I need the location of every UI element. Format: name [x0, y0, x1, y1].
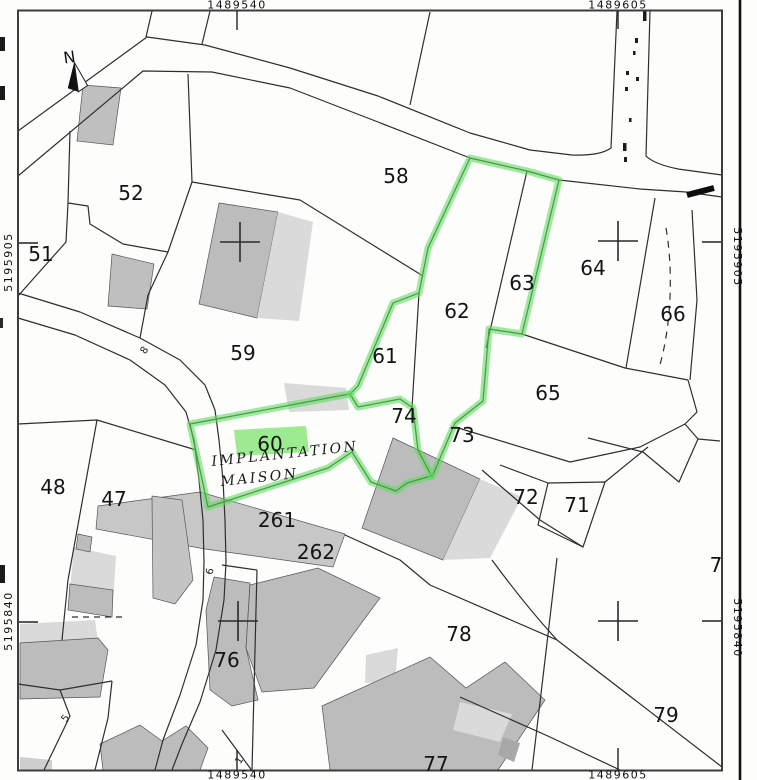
parcel-label-79: 79: [653, 703, 678, 727]
annotation-line2: MAISON: [219, 466, 300, 490]
road-centerline-dots: [623, 10, 647, 162]
parcel-label-61: 61: [372, 344, 397, 368]
road-edge-lower: [18, 71, 722, 197]
parcel-label-65: 65: [535, 381, 560, 405]
parcel-label-58: 58: [383, 164, 408, 188]
parcel-label-64: 64: [580, 256, 605, 280]
parcel-label-261: 261: [258, 508, 296, 532]
parcel-label-72: 72: [513, 485, 538, 509]
coordinate-label-right-upper: 5195905: [731, 227, 744, 287]
parcel-label-48: 48: [40, 475, 65, 499]
parcel-label-73: 73: [449, 423, 474, 447]
parcel-label-47: 47: [101, 487, 126, 511]
parcel-label-51: 51: [28, 242, 53, 266]
coordinate-label-right-lower: 5195840: [731, 598, 744, 658]
parcel-label-74: 74: [391, 404, 416, 428]
coordinate-label-bottom-left: 1489540: [207, 769, 267, 780]
coordinate-label-left-lower: 5195840: [2, 591, 15, 651]
parcel-label-59: 59: [230, 341, 255, 365]
coordinate-label-left-upper: 5195905: [2, 232, 15, 292]
road-label-1: 1: [233, 755, 246, 766]
parcel-label-78: 78: [446, 622, 471, 646]
road-label-8: 8: [139, 345, 152, 357]
parcel-label-52: 52: [118, 181, 143, 205]
road-label-5: 5: [60, 713, 73, 725]
coordinate-label-top-left: 1489540: [207, 0, 267, 12]
parcel-label-66: 66: [660, 302, 685, 326]
parcel-label-76: 76: [214, 648, 239, 672]
parcel-label-262: 262: [297, 540, 335, 564]
cadastral-map-page: N 1489540 1489605 1489540 1489605 519590…: [0, 0, 757, 780]
survey-cross: [598, 221, 638, 261]
road-fill-mark: [687, 188, 714, 195]
parcel-label-62: 62: [444, 299, 469, 323]
road-edge-upper-east: [646, 11, 722, 175]
parcel-label-7: 7: [710, 553, 723, 577]
parcel-label-71: 71: [564, 493, 589, 517]
parcel-label-63: 63: [509, 271, 534, 295]
road-label-6: 6: [205, 567, 217, 576]
survey-cross: [598, 601, 638, 641]
cadastral-map: N 1489540 1489605 1489540 1489605 519590…: [0, 0, 757, 780]
coordinate-label-bottom-right: 1489605: [588, 769, 648, 780]
north-arrow-icon: N: [62, 46, 88, 93]
coordinate-label-top-right: 1489605: [588, 0, 648, 12]
parcel-label-77: 77: [423, 752, 448, 776]
